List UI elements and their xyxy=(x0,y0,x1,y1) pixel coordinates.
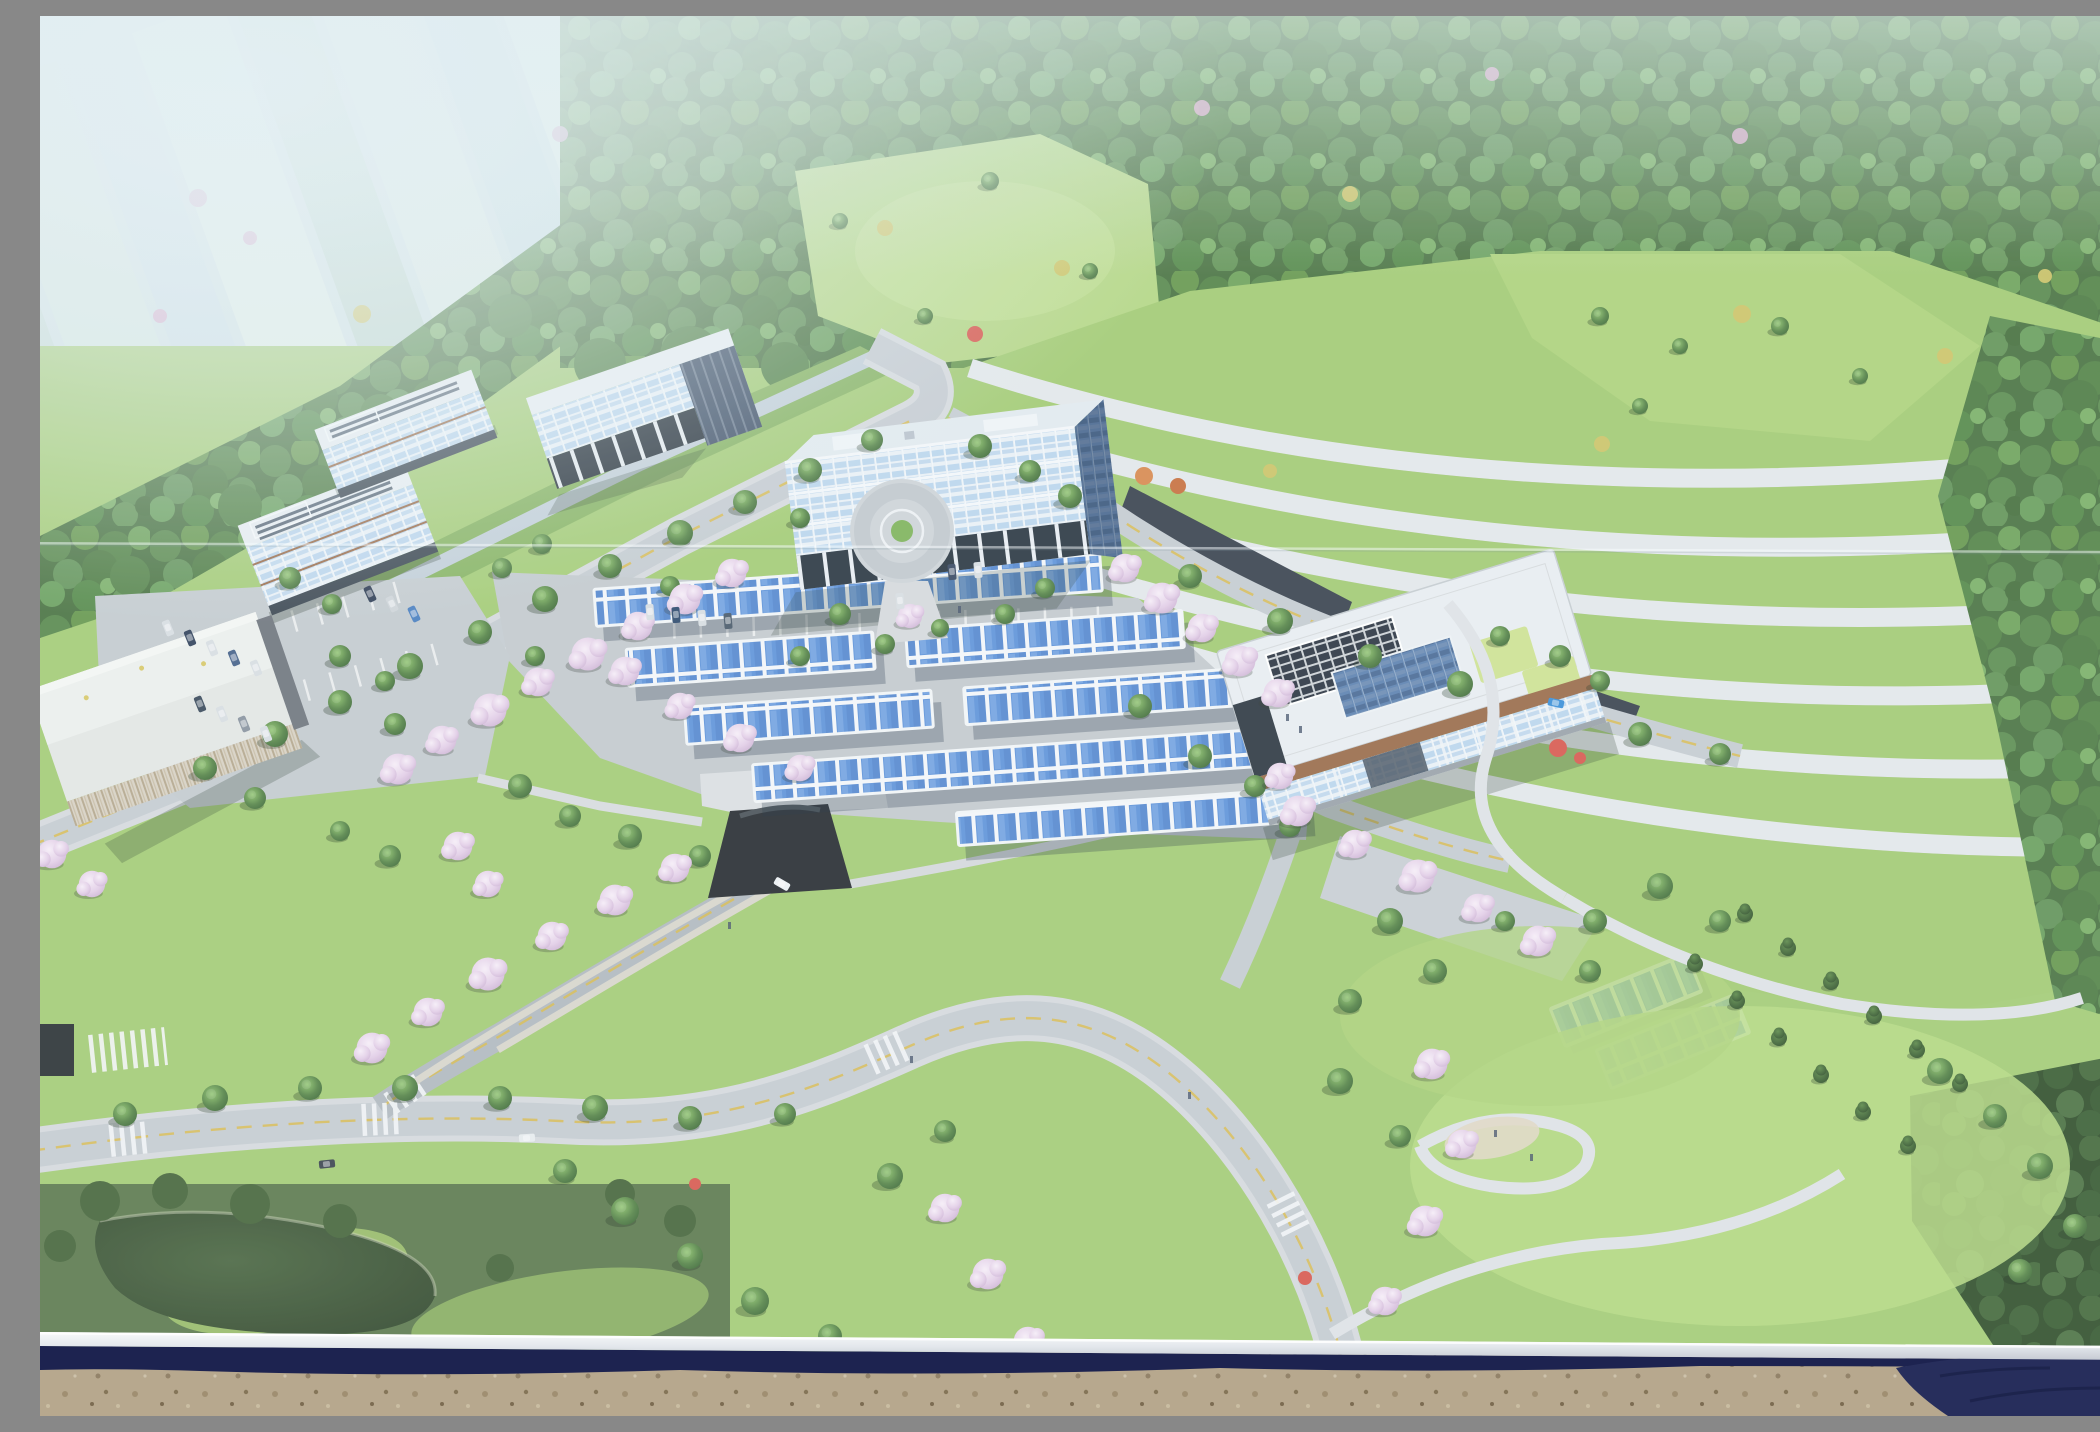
billboard-photo xyxy=(40,16,2100,1416)
rendering-artwork xyxy=(40,16,2100,1376)
aerial-rendering xyxy=(40,16,2100,1416)
